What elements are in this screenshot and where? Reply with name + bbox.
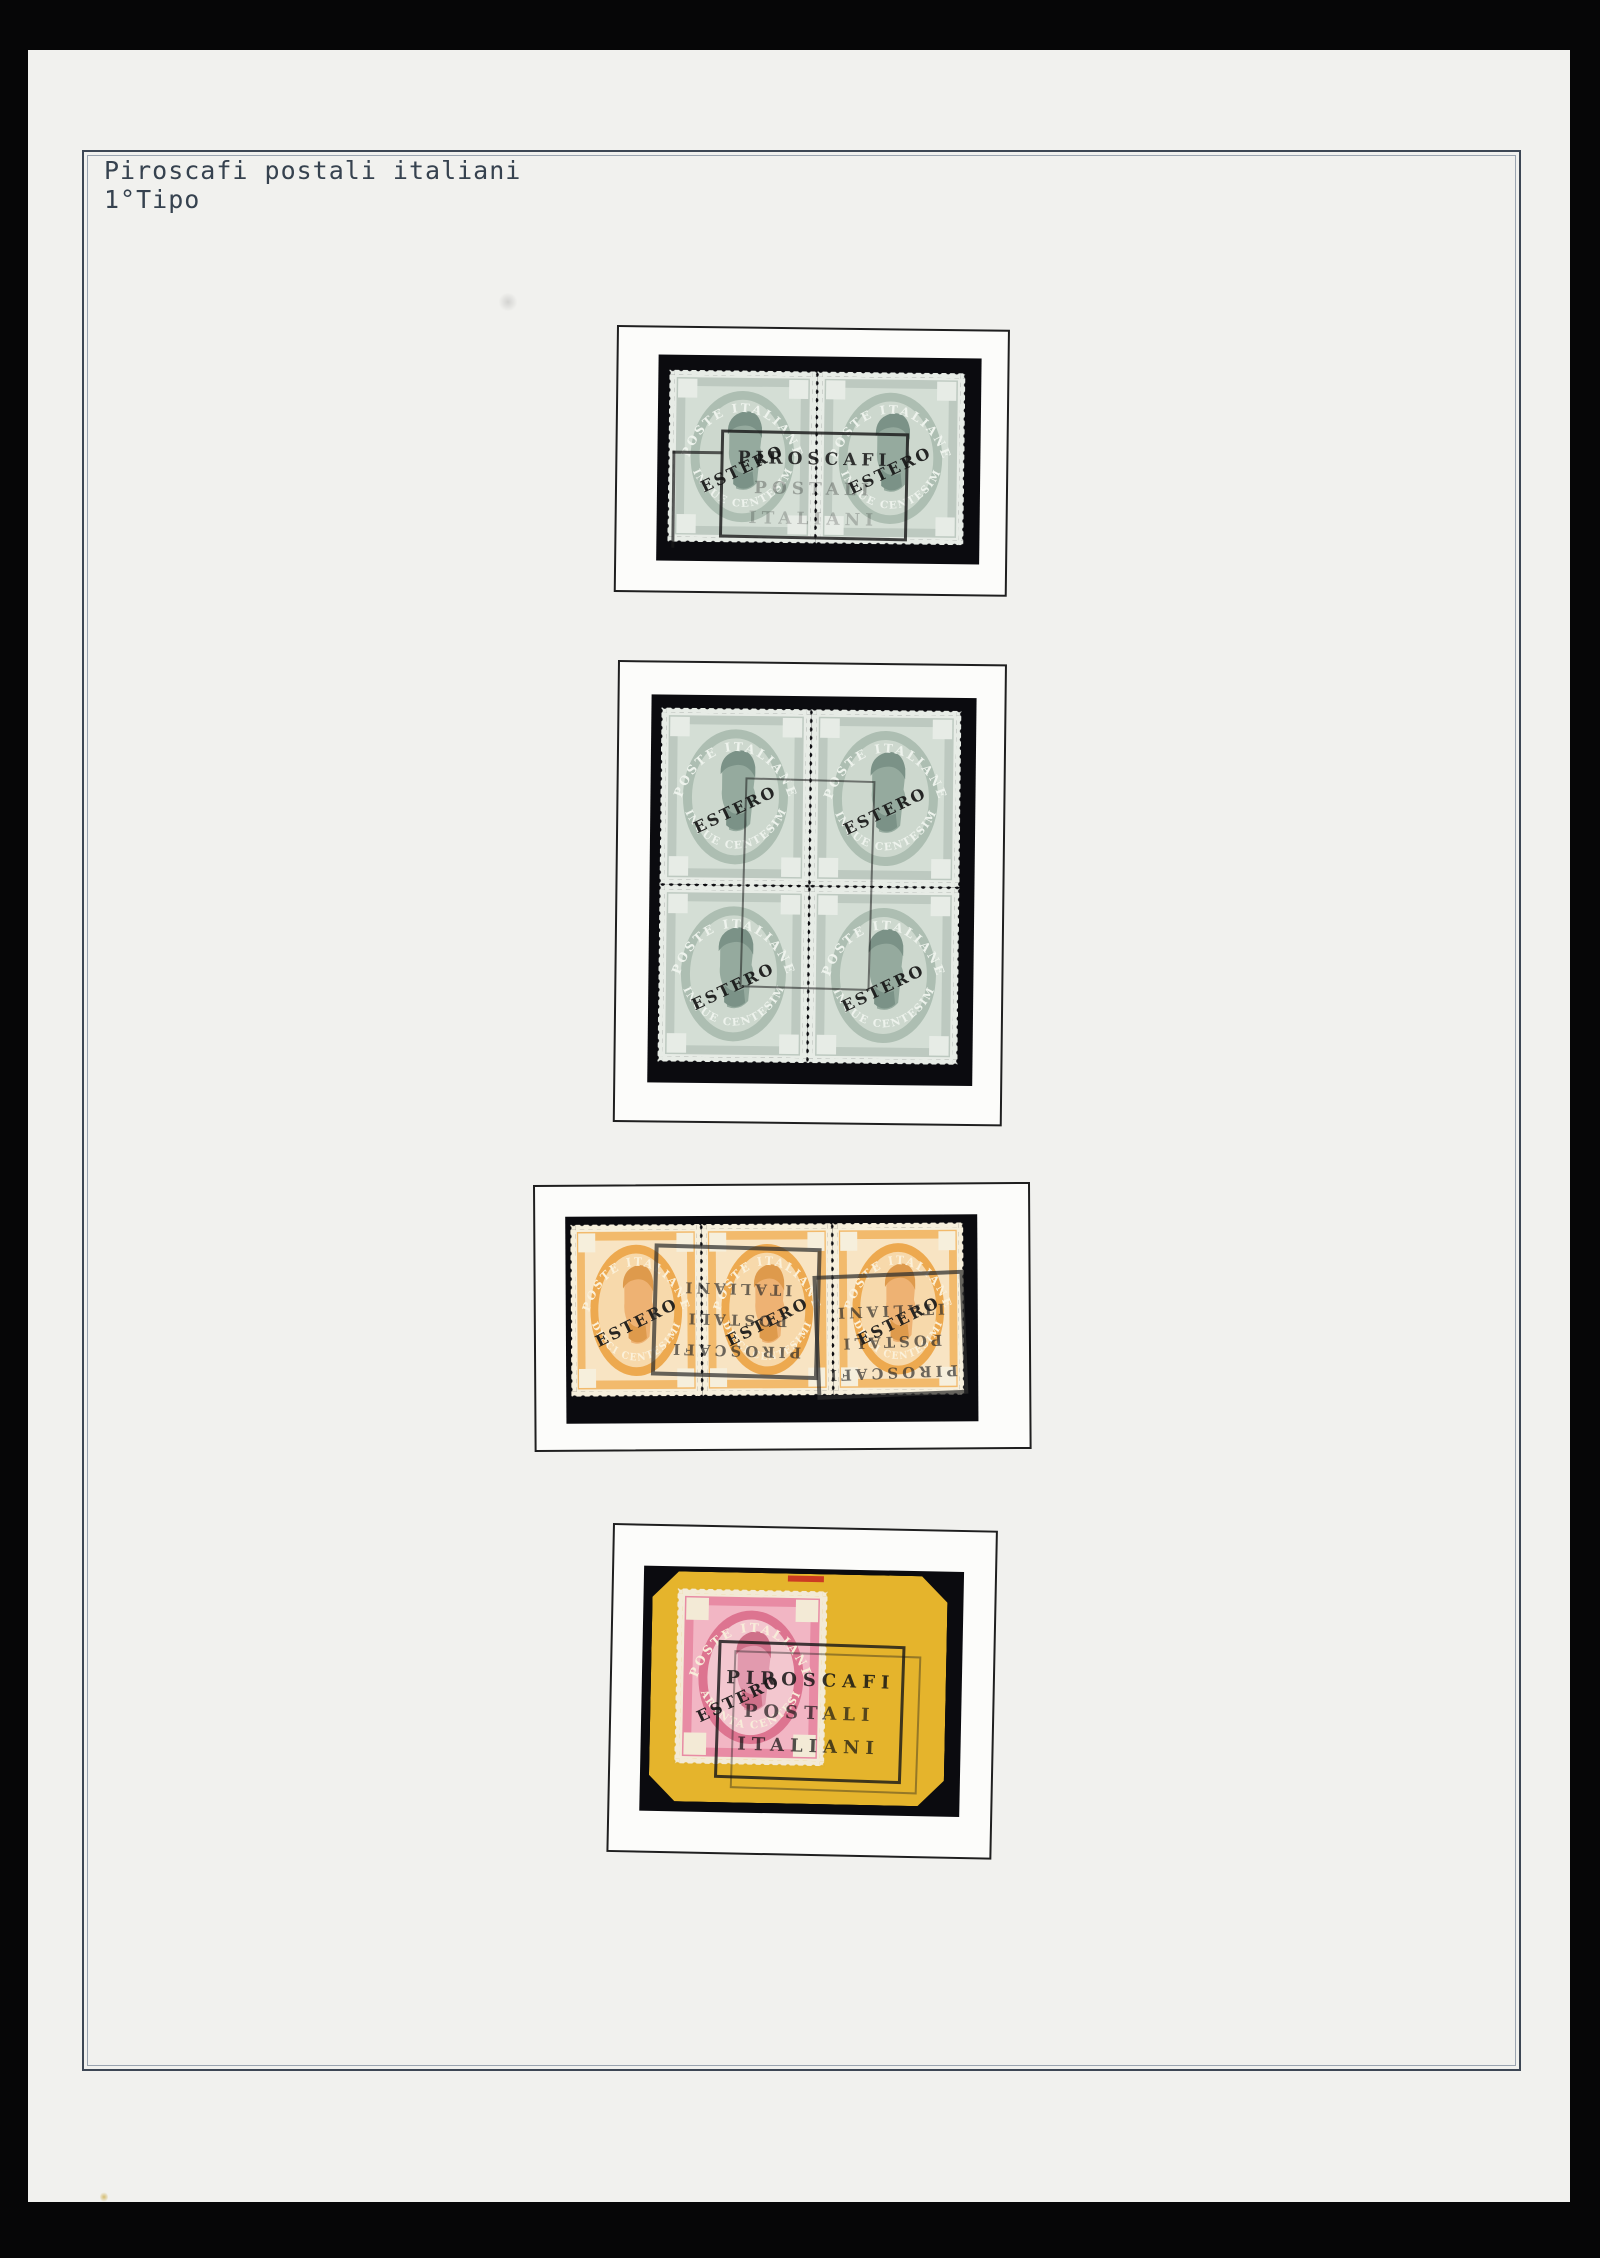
piroscafi-cancel-box: PIROSCAFI POSTALI ITALIANI [714, 1640, 906, 1784]
cancel-line: ITALIANI [817, 1292, 961, 1329]
red-fragment [788, 1576, 824, 1583]
black-mount: POSTE ITALIANE CINQUE CENTESIMI ESTERO [656, 355, 981, 565]
cancel-line: PIROSCAFI [655, 1332, 815, 1368]
piroscafi-cancel-box: PIROSCAFI POSTALI ITALIANI [719, 429, 909, 541]
cancel-line: POSTALI [819, 1323, 963, 1360]
black-mount: POSTE ITALIANE DIECI CENTESIMI ESTERO [565, 1214, 978, 1424]
black-mount: POSTE ITALIANE CINQUE CENTESIMI ESTERO [647, 694, 976, 1086]
stamp-display-piece: POSTE ITALIANE QUARANTA CENTESIMI ESTERO… [606, 1523, 998, 1860]
cancel-line: ITALIANI [722, 503, 905, 537]
cancel-line: PIROSCAFI [820, 1354, 964, 1391]
scan-speck [100, 2192, 108, 2202]
cancel-line: ITALIANI [718, 1727, 900, 1766]
cancel-stray-mark [672, 451, 722, 455]
scanned-album-page: Piroscafi postali italiani 1°Tipo [0, 0, 1600, 2258]
black-mount: POSTE ITALIANE QUARANTA CENTESIMI ESTERO… [639, 1566, 964, 1817]
title-line-2: 1°Tipo [104, 185, 521, 214]
scan-speck [498, 293, 518, 311]
page-title: Piroscafi postali italiani 1°Tipo [104, 156, 521, 214]
piroscafi-cancel-box-inverted: PIROSCAFI POSTALI ITALIANI [812, 1270, 968, 1400]
piroscafi-cancel-box [739, 777, 875, 991]
cancel-line: POSTALI [656, 1301, 816, 1337]
stamp-display-block: POSTE ITALIANE CINQUE CENTESIMI ESTERO [613, 660, 1007, 1126]
cancel-line: PIROSCAFI [723, 443, 906, 477]
cancel-line: ITALIANI [657, 1270, 817, 1306]
title-line-1: Piroscafi postali italiani [104, 156, 521, 185]
piroscafi-cancel-box-inverted: PIROSCAFI POSTALI ITALIANI [651, 1243, 822, 1380]
stamp-display-pair: POSTE ITALIANE CINQUE CENTESIMI ESTERO [614, 325, 1010, 597]
paper-piece: POSTE ITALIANE QUARANTA CENTESIMI ESTERO… [648, 1571, 948, 1807]
stamp-display-strip: POSTE ITALIANE DIECI CENTESIMI ESTERO [533, 1182, 1032, 1452]
cancel-line: POSTALI [723, 473, 906, 507]
album-page: Piroscafi postali italiani 1°Tipo [28, 50, 1570, 2202]
